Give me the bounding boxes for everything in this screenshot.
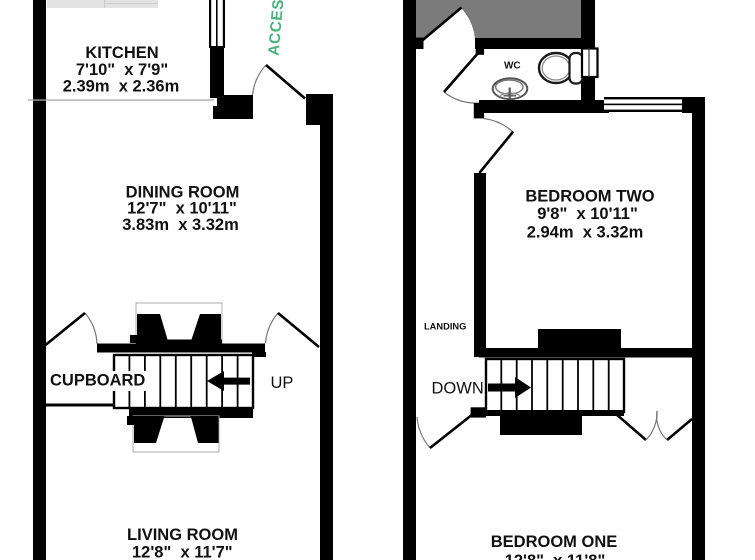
svg-text:9'8" x 10'11": 9'8" x 10'11"	[537, 205, 638, 223]
svg-text:BEDROOM ONE: BEDROOM ONE	[491, 533, 618, 551]
svg-text:UP: UP	[271, 374, 294, 392]
svg-text:WC: WC	[504, 61, 521, 72]
svg-text:3.83m x 3.32m: 3.83m x 3.32m	[122, 216, 239, 234]
svg-text:LANDING: LANDING	[424, 322, 466, 332]
svg-text:CUPBOARD: CUPBOARD	[50, 372, 145, 390]
svg-text:DOWN: DOWN	[432, 380, 484, 398]
svg-text:LIVING ROOM: LIVING ROOM	[127, 526, 238, 544]
svg-text:2.94m x 3.32m: 2.94m x 3.32m	[527, 224, 644, 242]
svg-text:2.39m x 2.36m: 2.39m x 2.36m	[63, 78, 180, 96]
svg-text:12'7" x 10'11": 12'7" x 10'11"	[127, 199, 237, 217]
svg-text:12'8" x 11'8": 12'8" x 11'8"	[505, 552, 606, 560]
svg-text:12'8" x 11'7": 12'8" x 11'7"	[132, 543, 233, 560]
svg-text:BEDROOM TWO: BEDROOM TWO	[525, 188, 654, 206]
svg-text:KITCHEN: KITCHEN	[85, 44, 158, 62]
svg-text:7'10" x 7'9": 7'10" x 7'9"	[76, 61, 168, 79]
